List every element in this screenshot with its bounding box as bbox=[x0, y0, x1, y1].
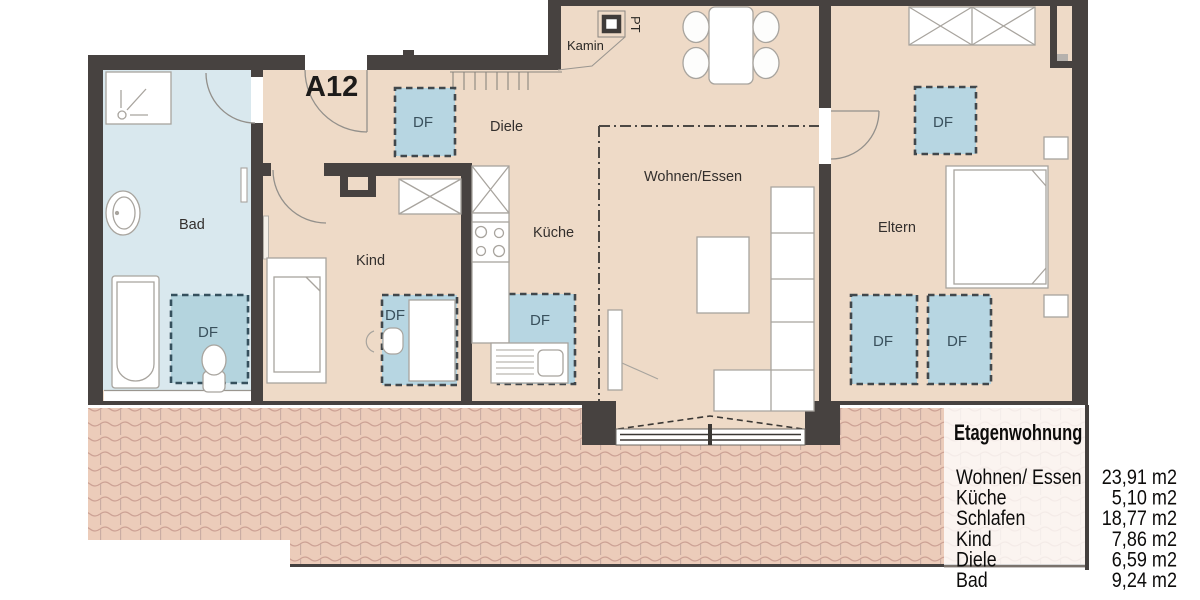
svg-text:PT: PT bbox=[628, 16, 643, 33]
svg-text:DF: DF bbox=[413, 114, 433, 131]
svg-text:Kind: Kind bbox=[356, 253, 385, 269]
svg-text:DF: DF bbox=[385, 307, 405, 324]
svg-text:Bad: Bad bbox=[179, 217, 205, 233]
svg-text:Wohnen/Essen: Wohnen/Essen bbox=[644, 169, 742, 185]
svg-text:Eltern: Eltern bbox=[878, 220, 916, 236]
svg-text:A12: A12 bbox=[305, 71, 358, 103]
svg-text:Etagenwohnung: Etagenwohnung bbox=[954, 421, 1082, 446]
svg-text:DF: DF bbox=[873, 333, 893, 350]
svg-text:DF: DF bbox=[530, 312, 550, 329]
svg-text:DF: DF bbox=[933, 114, 953, 131]
svg-text:DF: DF bbox=[947, 333, 967, 350]
svg-text:9,24 m2: 9,24 m2 bbox=[1112, 569, 1177, 593]
svg-text:Kamin: Kamin bbox=[567, 38, 604, 53]
svg-text:Diele: Diele bbox=[490, 119, 523, 135]
svg-text:Bad: Bad bbox=[956, 569, 988, 593]
svg-text:Küche: Küche bbox=[533, 225, 574, 241]
svg-text:DF: DF bbox=[198, 324, 218, 341]
